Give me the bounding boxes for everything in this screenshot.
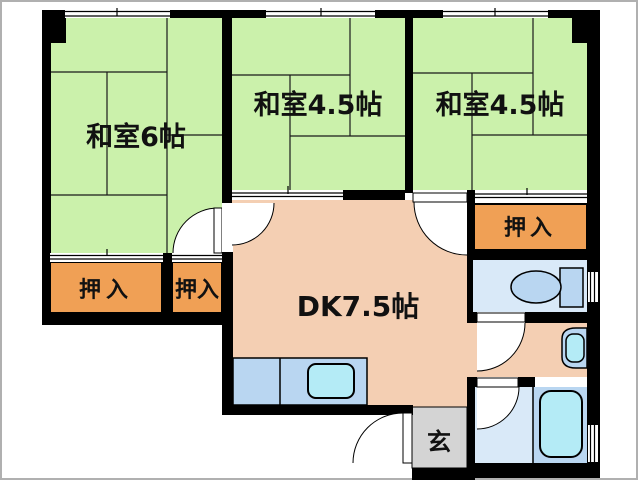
- wall-toilet-bottom-left: [467, 312, 477, 323]
- window-right-toilet: [588, 272, 598, 302]
- closet3-label: 押入: [504, 215, 556, 241]
- toilet-bowl: [511, 271, 561, 303]
- door-gap: [222, 203, 233, 252]
- dk-label: DK7.5帖: [297, 290, 420, 323]
- wall-closet-separator: [163, 253, 172, 313]
- wall-left: [42, 10, 51, 325]
- kitchen-sink: [308, 364, 354, 398]
- toilet-tank: [560, 268, 583, 307]
- wall-bath-left: [467, 377, 475, 463]
- room1-label: 和室6帖: [86, 121, 186, 153]
- washbasin-bowl: [566, 334, 584, 362]
- wall-entrance-bottom: [412, 468, 475, 480]
- window-right-bath: [588, 425, 598, 462]
- room2-label: 和室4.5帖: [254, 89, 383, 121]
- wall-closet3-bottom: [467, 250, 600, 260]
- sliding-door-closet2: [172, 253, 222, 262]
- wall-room3-bottom-post: [467, 190, 475, 260]
- wall-right: [587, 10, 600, 478]
- wall-bath-bottom: [467, 463, 600, 478]
- door-leaf: [413, 193, 467, 202]
- entrance-label: 玄: [427, 428, 451, 456]
- window-gap: [588, 272, 598, 302]
- wall-room1-room2-lower: [222, 252, 233, 415]
- closet2-label: 押入: [175, 277, 219, 303]
- room3-label: 和室4.5帖: [436, 89, 565, 121]
- wall-hall-bottom-right: [518, 377, 535, 387]
- door-leaf: [477, 313, 525, 322]
- door-leaf: [403, 413, 412, 463]
- bathtub: [540, 391, 582, 457]
- floor-plan-svg: 和室6帖 和室4.5帖 和室4.5帖 押入 押入 押入 DK7.5帖 玄: [0, 0, 638, 480]
- wall-room2-bottom: [343, 190, 405, 200]
- wall-bottom-left: [42, 313, 233, 325]
- wall-room1-room2-upper: [222, 10, 232, 203]
- wall-kitchen-bottom: [222, 405, 413, 415]
- wall-room2-room3: [405, 10, 413, 193]
- door-leaf: [214, 208, 222, 253]
- floor-plan-image: 和室6帖 和室4.5帖 和室4.5帖 押入 押入 押入 DK7.5帖 玄: [0, 0, 638, 480]
- door-gap: [475, 192, 587, 200]
- window-gap: [588, 425, 598, 462]
- door-gap: [172, 253, 222, 262]
- door-leaf: [477, 378, 518, 387]
- closet1-label: 押入: [79, 277, 133, 303]
- wall-toilet-bottom-right: [525, 312, 587, 323]
